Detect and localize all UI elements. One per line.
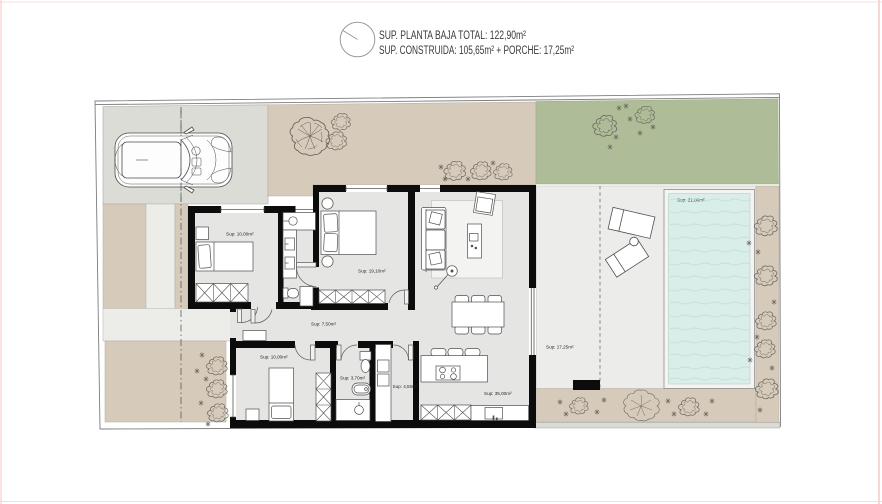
svg-text:Sup: 17,25m²: Sup: 17,25m²	[546, 345, 574, 350]
svg-text:Sup: 4,50m²: Sup: 4,50m²	[393, 384, 418, 389]
svg-text:Sup: 7,50m²: Sup: 7,50m²	[311, 322, 336, 327]
svg-text:Sup: 35,00m²: Sup: 35,00m²	[484, 391, 512, 396]
svg-text:Sup: 10,00m²: Sup: 10,00m²	[226, 232, 254, 237]
svg-text:SUP. CONSTRUIDA: 105,65m² + PO: SUP. CONSTRUIDA: 105,65m² + PORCHE: 17,2…	[379, 43, 574, 57]
svg-text:Sup: 3,70m²: Sup: 3,70m²	[340, 376, 365, 381]
svg-text:Sup: 19,10m²: Sup: 19,10m²	[358, 269, 386, 274]
svg-text:SUP. PLANTA BAJA TOTAL: 122,90: SUP. PLANTA BAJA TOTAL: 122,90m²	[379, 28, 526, 42]
svg-text:Sup: 10,00m²: Sup: 10,00m²	[260, 355, 288, 360]
